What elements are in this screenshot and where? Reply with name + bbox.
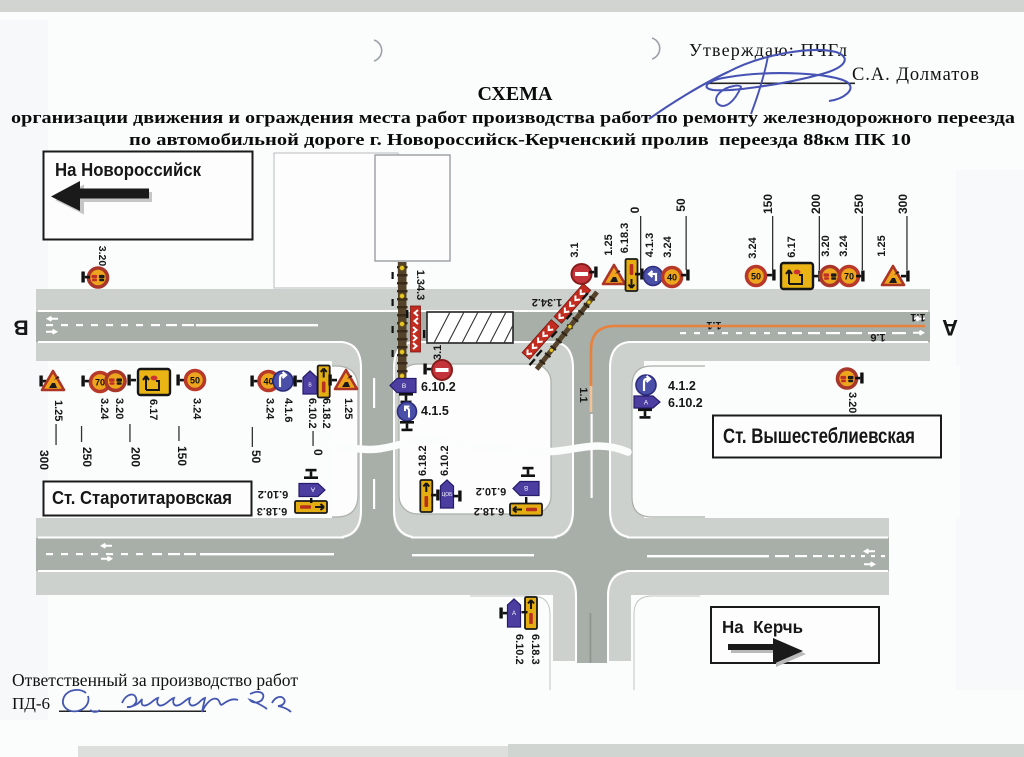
svg-text:1.25: 1.25: [603, 234, 615, 255]
svg-text:3.20: 3.20: [113, 398, 125, 419]
svg-text:А: А: [644, 400, 649, 407]
svg-text:150: 150: [761, 194, 775, 214]
svg-text:4.1.6: 4.1.6: [282, 398, 294, 422]
svg-text:6.18.3: 6.18.3: [257, 505, 288, 517]
svg-text:250: 250: [852, 194, 866, 214]
svg-text:50: 50: [674, 198, 688, 212]
svg-text:А: А: [942, 315, 958, 340]
svg-text:4.1.2: 4.1.2: [668, 379, 696, 393]
svg-text:На Керчь: На Керчь: [722, 617, 803, 637]
svg-text:6.17: 6.17: [786, 236, 798, 257]
svg-text:3.1: 3.1: [432, 345, 444, 360]
svg-text:Ответственный за производство: Ответственный за производство работ: [12, 670, 298, 690]
svg-text:организации движения и огражде: организации движения и ограждения места …: [11, 108, 1015, 127]
svg-text:6.10.2: 6.10.2: [439, 445, 451, 476]
svg-text:ПД-6: ПД-6: [12, 694, 50, 713]
svg-text:6.10.2: 6.10.2: [668, 396, 703, 410]
svg-text:6.18.2: 6.18.2: [320, 398, 332, 429]
svg-text:6.18.2: 6.18.2: [474, 505, 505, 517]
svg-text:1.25: 1.25: [52, 400, 64, 421]
svg-text:3.20: 3.20: [820, 235, 832, 256]
svg-text:6.10.2: 6.10.2: [513, 634, 525, 665]
svg-text:1.25: 1.25: [342, 398, 354, 419]
svg-text:250: 250: [80, 447, 94, 467]
svg-text:1.6: 1.6: [870, 331, 885, 343]
svg-text:3.24: 3.24: [662, 235, 674, 257]
svg-text:А: А: [310, 486, 315, 493]
svg-text:1.1: 1.1: [910, 311, 925, 323]
svg-text:1.25: 1.25: [876, 235, 888, 256]
svg-text:6.10.2: 6.10.2: [258, 488, 289, 500]
svg-text:3.24: 3.24: [838, 234, 850, 256]
svg-text:В: В: [402, 383, 406, 390]
svg-text:по автомобильной дороге г. Нов: по автомобильной дороге г. Новороссийск-…: [129, 130, 911, 149]
svg-text:6.10.2: 6.10.2: [476, 485, 507, 497]
svg-text:0: 0: [628, 206, 642, 213]
svg-text:3.20: 3.20: [96, 246, 108, 267]
svg-text:3.24: 3.24: [191, 398, 203, 420]
svg-text:6.18.3: 6.18.3: [619, 223, 631, 254]
svg-text:1.34.3: 1.34.3: [414, 270, 426, 301]
svg-text:200: 200: [129, 447, 143, 467]
svg-text:0: 0: [311, 449, 325, 456]
svg-text:6.10.2: 6.10.2: [306, 398, 318, 429]
svg-text:3.20: 3.20: [846, 392, 858, 413]
svg-text:4.1.3: 4.1.3: [644, 233, 656, 257]
svg-text:На Новороссийск: На Новороссийск: [55, 160, 202, 180]
svg-text:200: 200: [809, 194, 823, 214]
svg-text:С.А. Долматов: С.А. Долматов: [852, 65, 979, 85]
svg-text:1.1: 1.1: [577, 387, 589, 402]
svg-text:6.18.2: 6.18.2: [417, 445, 429, 476]
svg-text:В: В: [524, 484, 528, 490]
svg-text:3.24: 3.24: [98, 398, 110, 420]
svg-text:ЦОБ: ЦОБ: [442, 492, 453, 498]
svg-text:В: В: [13, 315, 28, 338]
svg-text:6.18.3: 6.18.3: [529, 634, 541, 665]
svg-text:3.1: 3.1: [569, 242, 581, 257]
svg-text:300: 300: [37, 450, 51, 470]
svg-text:А: А: [512, 611, 516, 617]
svg-text:СХЕМА: СХЕМА: [478, 84, 553, 105]
svg-text:6.17: 6.17: [147, 399, 159, 420]
svg-text:300: 300: [896, 194, 910, 214]
svg-text:50: 50: [249, 450, 263, 464]
svg-text:1.34.2: 1.34.2: [532, 296, 563, 308]
svg-text:4.1.5: 4.1.5: [421, 404, 449, 418]
svg-text:3.24: 3.24: [264, 398, 276, 420]
svg-text:Ст. Вышестеблиевская: Ст. Вышестеблиевская: [723, 425, 915, 448]
svg-text:Ст. Старотитаровская: Ст. Старотитаровская: [52, 488, 232, 508]
svg-text:150: 150: [175, 446, 189, 466]
svg-text:3.24: 3.24: [747, 236, 759, 258]
svg-text:6.10.2: 6.10.2: [421, 380, 456, 394]
